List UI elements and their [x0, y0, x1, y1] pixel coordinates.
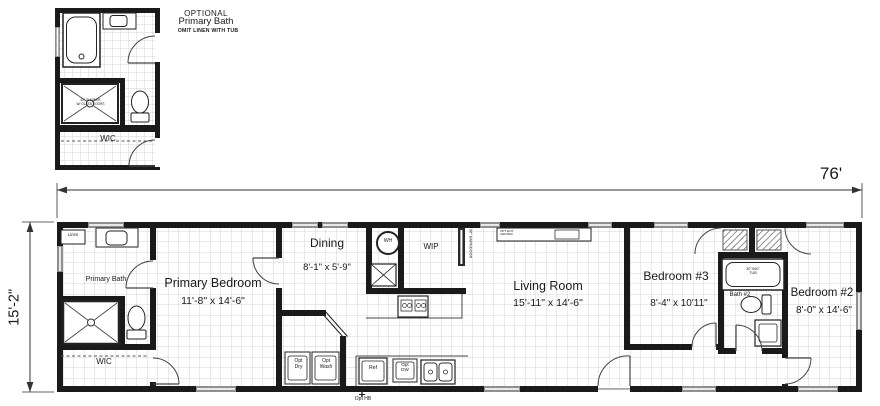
- water-heater-label: WH: [378, 239, 398, 245]
- opt-dryer-line2: Dry: [287, 365, 310, 371]
- floorplan-canvas: OPTIONAL Primary Bath OMIT LINEN WITH TU…: [0, 0, 880, 406]
- room-size-bedroom2: 8'-0" x 14'-6": [766, 305, 880, 317]
- vanity-sink-icon: [103, 13, 136, 29]
- opt-hose-bib-label: Opt HB: [347, 397, 379, 403]
- room-label-bedroom3: Bedroom #3: [614, 270, 738, 284]
- room-label-bath2: Bath #2: [718, 292, 762, 299]
- room-label-living-room: Living Room: [478, 279, 618, 293]
- overall-height-dimension: 15'-2": [7, 271, 24, 343]
- ent-center-line2: CENTER: [500, 233, 552, 237]
- primary-toilet-icon: [127, 306, 146, 339]
- room-label-wic: WIC: [68, 357, 140, 366]
- room-label-primary-bath: Primary Bath: [64, 276, 148, 284]
- room-label-bedroom2: Bedroom #2: [762, 287, 880, 300]
- barn-door-icon: [458, 228, 465, 266]
- shelf-unit-icon: [371, 264, 396, 286]
- main-plan: [57, 222, 862, 397]
- room-label-primary-bedroom: Primary Bedroom: [142, 276, 284, 290]
- room-size-bedroom3: 8'-4" x 10'11": [614, 298, 744, 310]
- room-label-dining: Dining: [288, 237, 366, 251]
- barn-door-label: 36" BARNDOOR: [466, 229, 473, 271]
- opt-ent-center-label: OPT ENT CENTER: [500, 230, 552, 237]
- room-size-dining: 8'-1" x 5'-9": [280, 263, 374, 274]
- range-icon: [398, 296, 428, 317]
- linen-label: Linen: [60, 233, 86, 238]
- primary-shower-icon: [63, 301, 119, 344]
- refrigerator-label: Ref: [359, 366, 387, 372]
- shower-note-line2: W/ GLASS DOORS: [63, 103, 118, 107]
- tub-size-line2: TUB: [727, 271, 779, 275]
- floorplan-drawing: [0, 0, 880, 406]
- toilet-icon: [131, 91, 149, 122]
- detail-window: [55, 27, 60, 57]
- detail-note: OMIT LINEN WITH TUB: [156, 29, 260, 35]
- room-size-primary-bedroom: 11'-8" x 14'-6": [142, 295, 284, 307]
- opt-washer-label: Opt Wash: [311, 359, 341, 371]
- shower-note: 42" SHOWER W/ GLASS DOORS: [63, 99, 118, 106]
- room-size-living-room: 15'-11" x 14'-6": [478, 297, 618, 309]
- opt-dishwasher-label: Opt DW: [393, 362, 417, 373]
- opt-dishwasher-line2: DW: [393, 367, 417, 372]
- opt-washer-line2: Wash: [311, 365, 341, 371]
- bath2-vanity-icon: [755, 320, 781, 346]
- bath2-tub-label: 30"X60" TUB: [727, 267, 779, 276]
- bathtub-icon: [63, 13, 100, 67]
- kitchen-sink-icon: [421, 360, 455, 384]
- detail-title-line2: Primary Bath: [158, 17, 254, 28]
- opt-dryer-label: Opt Dry: [287, 359, 310, 371]
- optional-bath-detail-plan: [55, 8, 160, 170]
- detail-wic-label: WIC: [78, 134, 138, 143]
- overall-width-dimension: 76': [800, 164, 862, 184]
- room-label-wip: WIP: [406, 242, 456, 251]
- primary-vanity-icon: [96, 228, 138, 247]
